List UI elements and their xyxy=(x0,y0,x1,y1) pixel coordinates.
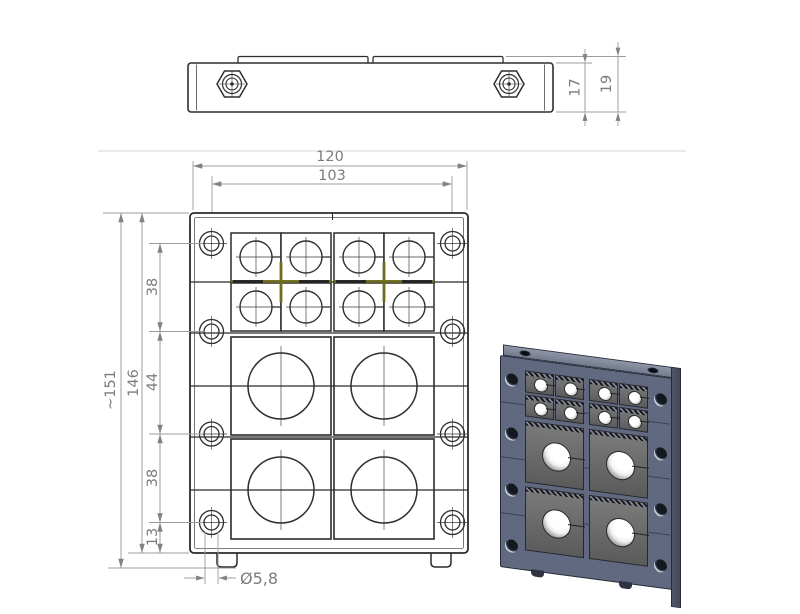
render-small-module xyxy=(555,374,584,400)
dim-label-frame-height: 146 xyxy=(126,369,142,397)
dim-label-pitch-top: 38 xyxy=(145,278,161,296)
dim-label-overall-width: 120 xyxy=(316,149,344,165)
isometric-render xyxy=(500,355,680,614)
countersunk-screw-icon xyxy=(519,350,531,358)
render-small-module xyxy=(589,403,618,429)
dim-label-hole-dia: Ø5,8 xyxy=(240,569,278,588)
dim-label-bottom-offset: 13 xyxy=(145,528,161,546)
render-mount-hole xyxy=(505,427,518,442)
render-mount-hole xyxy=(654,503,667,518)
dim-label-overall-height: ~151 xyxy=(103,370,119,410)
countersunk-screw-icon xyxy=(647,367,659,375)
render-small-module xyxy=(555,398,584,424)
render-small-module xyxy=(619,407,648,433)
foot-right xyxy=(431,554,451,568)
render-module-grid xyxy=(525,370,649,581)
render-mount-hole xyxy=(654,393,667,408)
render-front-face xyxy=(500,355,672,590)
render-mount-hole xyxy=(654,559,667,574)
dim-label-pitch-bottom: 38 xyxy=(145,469,161,487)
dim-label-body-height: 17 xyxy=(568,78,584,96)
render-mount-hole xyxy=(654,447,667,462)
render-large-module xyxy=(589,429,648,499)
dim-label-pitch-mid: 44 xyxy=(145,373,161,391)
render-mount-hole xyxy=(505,373,518,388)
hex-bolt-right xyxy=(494,71,524,97)
foot-left xyxy=(217,554,237,568)
dim-label-total-height: 19 xyxy=(599,75,615,93)
top-view-body xyxy=(188,63,553,112)
render-small-module xyxy=(589,379,618,405)
render-large-module xyxy=(525,420,584,490)
top-view xyxy=(188,57,553,113)
render-mount-hole xyxy=(505,539,518,554)
render-side-face xyxy=(671,367,681,608)
render-large-module xyxy=(589,495,648,567)
dim-label-hole-span: 103 xyxy=(318,168,346,184)
render-small-module xyxy=(525,394,554,420)
render-small-module xyxy=(619,383,648,409)
hex-bolt-left xyxy=(217,71,247,97)
render-foot xyxy=(619,581,632,590)
drawing-sheet: 17 19 120 103 xyxy=(0,0,800,614)
render-foot xyxy=(531,569,544,578)
render-small-module xyxy=(525,370,554,396)
render-large-module xyxy=(525,486,584,558)
render-mount-hole xyxy=(505,483,518,498)
